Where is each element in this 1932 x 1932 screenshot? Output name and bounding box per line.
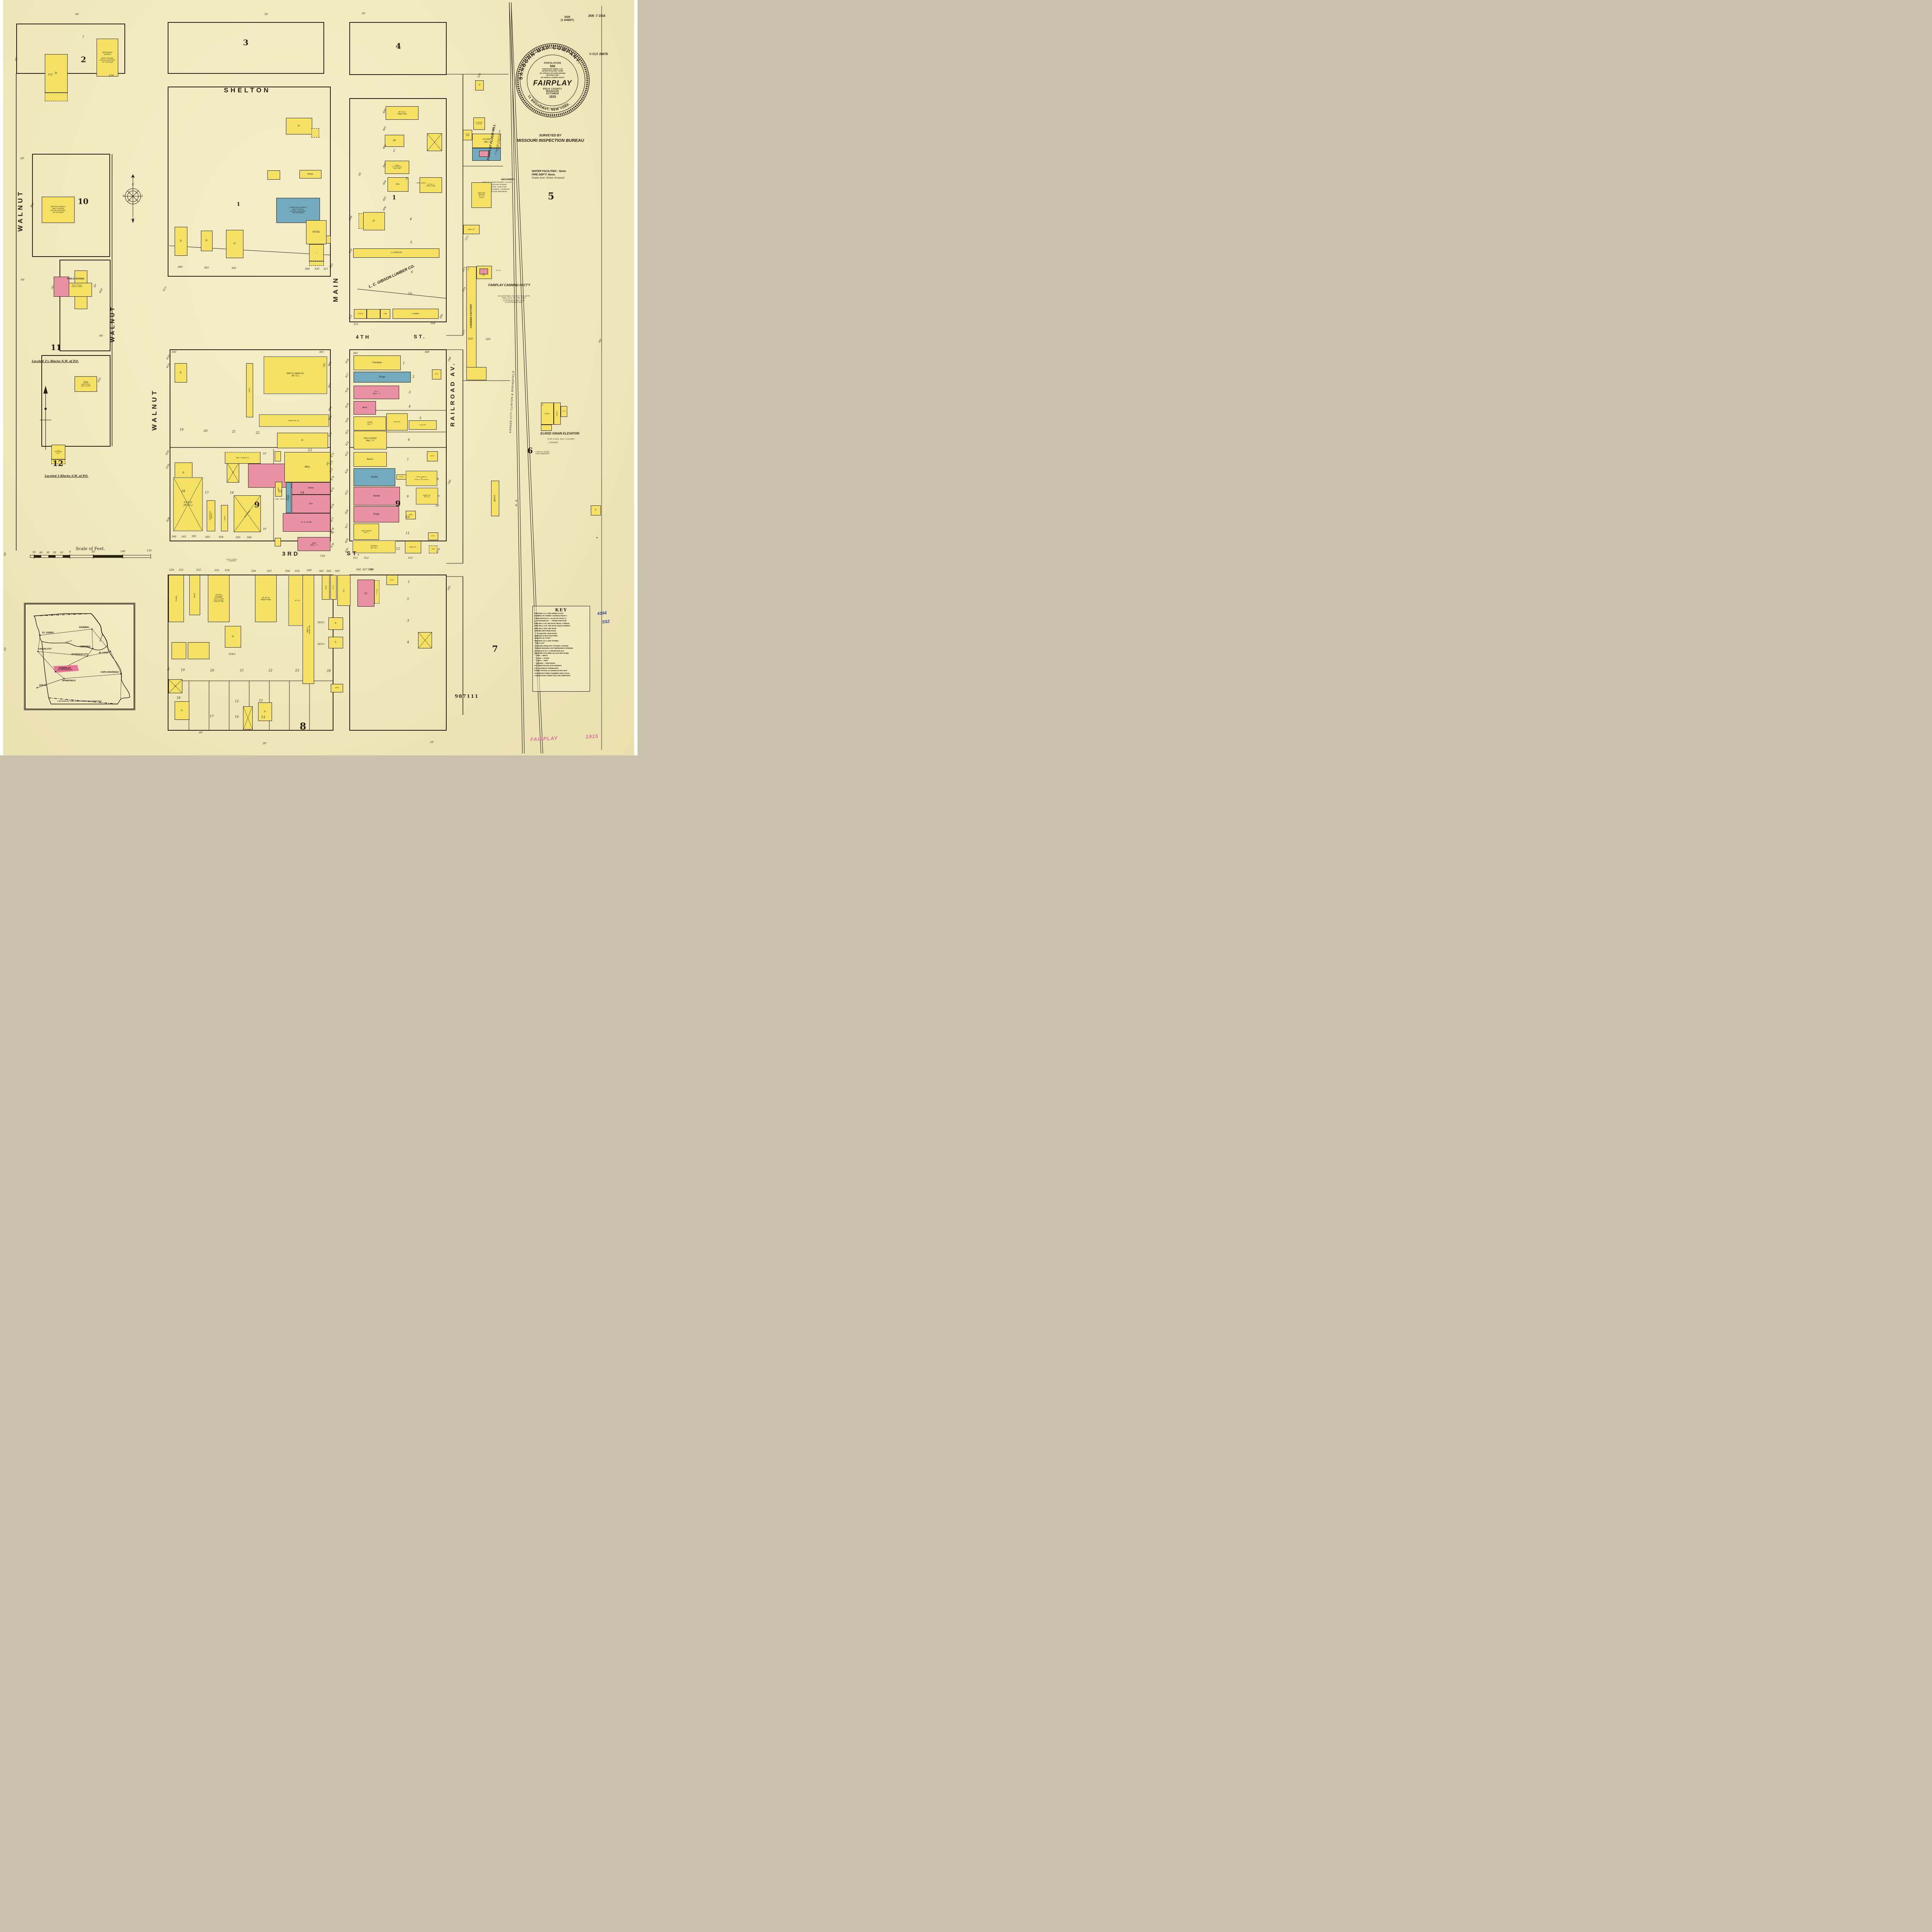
drug-store-label: Drugs [379, 376, 385, 379]
building: D. [175, 701, 189, 720]
printing-shop-label: Printing 1 HP. GAS. ENG. 3 GAL. TANK [392, 165, 402, 169]
map-label: Scale of Feet. [76, 547, 105, 552]
depot: DEPOT [491, 481, 499, 516]
furniture-store: Furniture [354, 355, 401, 370]
map-label: 30 [46, 551, 49, 554]
building: AUTO. [432, 369, 441, 379]
map-label: 7 [406, 458, 408, 461]
map-label: 300 [178, 266, 182, 269]
inset-city-dot [64, 678, 65, 679]
map-label: 515 [408, 557, 413, 560]
map-label: 15 [259, 699, 263, 702]
building-label: 1½ [232, 472, 234, 473]
building-label: POULTRY [394, 421, 401, 423]
map-label: N [132, 183, 134, 186]
building-label: WARE HO. (IR. CL.) [423, 495, 431, 498]
map-label: 10' [263, 452, 267, 456]
building-label: D. [335, 641, 337, 644]
map-label: 10 [408, 292, 412, 295]
soda-water-factory-label: SODA WATER FACT'Y. [361, 530, 371, 534]
map-label: 310 [315, 268, 319, 271]
map-label: 70' [330, 532, 334, 535]
hardware-store: Hardw. [354, 487, 400, 505]
map-label: 319 [468, 338, 473, 341]
map-label: 1 [403, 361, 405, 365]
hardware-store: Hardw. [354, 468, 395, 486]
building: Barber [292, 482, 330, 495]
building-label: SHED [249, 388, 250, 392]
building [311, 128, 319, 138]
map-label: 9 [254, 500, 260, 510]
implement-warehouse: IMPL'T. WARE HO. [303, 575, 314, 684]
map-label: 60' [21, 279, 25, 282]
building-label: WARE HO. [409, 546, 417, 548]
building: PLATFM. [396, 474, 406, 480]
telephone-exchange: D. & TELEPHONE EXCH. [51, 445, 65, 459]
building-label: 1½ [175, 685, 177, 687]
map-label: 13 [261, 715, 265, 719]
building-label: D. [232, 636, 234, 638]
building [275, 538, 281, 546]
electric-light-plant: ELECTRIC LIGHT PLANT & GARAGE CAP'C'Y 12… [208, 575, 230, 622]
building: WARE HO. [405, 541, 421, 553]
building-label: Restr't. [194, 592, 196, 598]
building: POULTRY [409, 420, 437, 430]
building [466, 367, 486, 380]
building: B [427, 133, 442, 151]
map-label: 309 [305, 268, 310, 271]
building: OFFICE [354, 309, 367, 319]
map-label: 560 [307, 569, 311, 572]
private-repair-shop: PRIVATE REPAIR SHOP [471, 182, 492, 208]
building: IMPL'T. WARE HO. [225, 452, 260, 464]
map-label: 554 [225, 569, 230, 572]
christian-church: CHRISTIAN CHURCH HEAT: STOVE. LIGHTS: EL… [276, 198, 320, 223]
scale-bar [30, 554, 151, 559]
map-label: 3 [405, 177, 407, 180]
map-label: 2 [542, 403, 543, 406]
building [275, 451, 281, 461]
printing-shop: Printing 1 HP. GAS. ENG. 3 GAL. TANK [385, 161, 409, 174]
furniture-store-label: Furniture [372, 362, 382, 364]
building-label: PLATFORM [376, 589, 378, 595]
building: SHED [275, 482, 282, 497]
building-label: D. [335, 622, 337, 625]
building-label: SHED [335, 687, 338, 689]
key-line: CONSECUTIVE STREET NO'S ARE ARBITRARY [534, 675, 588, 677]
building: D. [225, 626, 241, 648]
building [418, 632, 432, 648]
map-label: 362 [353, 352, 358, 355]
inset-city-st-louis: ST. LOUIS [99, 652, 109, 654]
baptist-church-label: BAPTIST CHURCH HEAT: STOVES LIGHTS: ELEC… [50, 206, 66, 213]
map-label: 9 [395, 499, 401, 509]
building: AUTO. [428, 532, 438, 540]
photo-studio: Photo. [299, 170, 321, 179]
building [243, 706, 253, 730]
hardware-warehouse: HARDW. WARE HO. (8) (CORR. IR. ON STUDD'… [406, 471, 437, 486]
map-label: PUBLIC SCHOOL [67, 278, 85, 280]
blacksmith-wagon-shop: Bl. Sm. & Wagon Shop [386, 106, 418, 120]
building: 1½ [227, 463, 239, 483]
building: Poultry [168, 575, 184, 622]
soda-water-factory: SODA WATER FACT'Y. [354, 524, 379, 540]
map-label: MAIN [332, 276, 340, 302]
moving-pictures: MOVING PICTURES - 2° [286, 482, 291, 513]
map-label: 18 [177, 696, 180, 699]
map-label: 506 [247, 536, 252, 539]
map-label: 6 [408, 438, 410, 441]
building: WARE HO. (IR. CL.) [416, 488, 438, 505]
sanborn-seal: SANBORN MAP COMPANY. 11 BROADWAY, NEW YO… [515, 43, 590, 118]
building: POULTRY [386, 413, 408, 430]
map-label: 21 [240, 668, 244, 672]
map-label: 20 [204, 429, 207, 432]
map-label: 1020 (1 SHEET) [561, 16, 574, 22]
building-label: D. [301, 439, 304, 442]
implements-warehouse: IMPLTS. WARE HO. (IR. CL.) [264, 356, 327, 394]
post-office: POST OFFICE HALL - 2° [354, 431, 387, 449]
map-label: JAN -7 1916 [588, 14, 605, 17]
restaurant: Restr't. IR. CL. [259, 414, 329, 427]
hardware-store-label: Hardw. [373, 495, 381, 498]
hotel-grocery-label: Gro Hall 2° [364, 592, 368, 595]
map-label: 552 [196, 569, 201, 572]
map-label: 150 [147, 549, 151, 553]
bank-office-label: Bank Office - 2° [310, 542, 318, 546]
map-label: 311 [323, 268, 328, 271]
map-label: E [141, 195, 143, 197]
building-label: AUTO. [431, 536, 435, 537]
building-label: D. [264, 711, 266, 713]
map-label: 50 [92, 551, 95, 554]
bank-office: Bank Office - 2° [298, 537, 330, 551]
building: FLOUR MILL & OFFICE [473, 117, 485, 130]
building-label: IMPL'T. WARE HO. [236, 457, 250, 459]
building: D. [226, 230, 243, 258]
map-label: 2 [81, 55, 86, 65]
missouri-location-inset: ST. JOSEPHHANNIBALKANSAS CITYCOLUMBIAJEF… [25, 604, 134, 709]
building [188, 642, 209, 659]
map-label: 12 [396, 547, 400, 550]
map-label: © Cl.F 29678 [589, 52, 608, 56]
map-label: 2 [412, 375, 414, 378]
map-label: 50' [362, 12, 366, 15]
building-label: PLATFM. [399, 476, 404, 478]
building: SCALES [554, 403, 561, 425]
seal-year: 1915 [549, 95, 556, 99]
map-label: 6 [411, 270, 413, 274]
surveyed-by: SURVEYED BY [515, 134, 585, 137]
bank-label: Bank [362, 406, 367, 409]
building-label: AUTO. [435, 374, 439, 375]
building-label: Gro. [396, 184, 400, 186]
inset-city-cape-girardeau: CAPE GIRARDEAU [100, 671, 119, 673]
map-label: 501 [182, 536, 186, 539]
implements-warehouse-label: IMPLTS. WARE HO. (IR. CL.) [287, 373, 304, 377]
building: OFF. [561, 406, 567, 417]
map-label: 361 [319, 351, 324, 354]
building-label: Off. [393, 140, 396, 142]
restaurant: Restr't. [354, 452, 387, 467]
building: SHED [331, 684, 343, 692]
map-label: 114 [109, 74, 114, 77]
map-label: 505 [236, 536, 240, 539]
building-label: Barber [308, 487, 314, 490]
lumber-yard: L U M B E R [353, 248, 439, 258]
map-label: 1 BBL. GASOL. [275, 498, 286, 500]
undertakers-warehouse-label: UNDERTAKER'S WARE HO. [209, 511, 212, 520]
map-label: 18 [181, 489, 185, 493]
map-label: 563⅓ [318, 643, 325, 646]
map-label: 368 [425, 351, 429, 354]
inset-city-kansas-city: KANSAS CITY [38, 648, 51, 650]
building-label: DRAYMAN [244, 510, 251, 518]
map-label: Located 2½ Blocks N.W. of P.O. [32, 360, 79, 363]
inset-city-dot [40, 635, 41, 636]
map-label: 4 [408, 405, 410, 408]
map-label: 1 BBL. GASOL. [416, 182, 427, 184]
map-label: WALNUT [151, 389, 158, 430]
building-label: OFFICE [358, 313, 363, 315]
blacksmith-wagon-shop-label: Bl. Sm. & Wagon Shop [397, 111, 406, 115]
map-label: 7 [492, 645, 498, 655]
map-label: IR. CH. [496, 270, 501, 271]
inspection-bureau: MISSOURI INSPECTION BUREAU [515, 138, 585, 143]
drug-store: Drugs [354, 372, 411, 383]
inset-city-dot [37, 687, 38, 689]
telephone-exchange-label: D. & TELEPHONE EXCH. [54, 450, 62, 454]
map-label: 5 [419, 416, 421, 420]
map-label: 312 [354, 323, 358, 326]
building-label: (IR. CL.) [294, 600, 300, 601]
map-label: 7 [82, 35, 84, 39]
inset-city-hannibal: HANNIBAL [79, 626, 89, 629]
building: AUTO. [427, 451, 438, 461]
map-label: 502 [192, 535, 196, 538]
map-label: 4 [410, 217, 412, 221]
map-label: 558 [285, 570, 290, 573]
key-title: KEY [534, 607, 588, 612]
drug-store: Drugs [354, 506, 399, 522]
dry-goods: D. G. Office - 2° [354, 386, 399, 399]
map-label: 8 [300, 721, 306, 732]
map-label: 12 [53, 459, 63, 468]
map-label: 9 [406, 495, 408, 498]
building-label: B [434, 141, 435, 143]
map-label: S [132, 217, 134, 220]
map-label: R. R. [515, 498, 519, 507]
map-label: 511 [353, 557, 358, 560]
map-label: ELROD GRAIN ELEVATOR [541, 432, 579, 435]
building: Cobbler [221, 505, 228, 531]
building-label: SHED [432, 549, 435, 550]
map-label: 504 [219, 536, 223, 539]
building-label: WIRE HO. [468, 229, 475, 230]
hardware-store-label: Hardw. [371, 476, 378, 479]
map-label: 0 [69, 551, 71, 554]
map-label: 5 [410, 240, 412, 244]
photo-studio-label: Photo. [308, 173, 314, 175]
map-label: 4 [396, 42, 401, 51]
map-label: 21 [232, 430, 236, 433]
building: SHED [246, 363, 253, 417]
map-label: 22 [269, 668, 272, 672]
map-label: FAIRPLAY CANNING FACT'Y [488, 283, 531, 287]
inset-city-dot [37, 651, 39, 652]
map-label: 987111 [455, 694, 479, 699]
hardware-warehouse-label: HARDW. WARE HO. (8) (CORR. IR. ON STUDD'… [415, 476, 429, 480]
building-label: AUTO. [430, 456, 435, 457]
building: Harness [330, 575, 337, 600]
map-label: 60' [20, 157, 24, 160]
lumber-yard-label: LUMBER [412, 313, 419, 315]
post-office-label: POST OFFICE HALL - 2° [364, 438, 376, 442]
map-label: 3RD [282, 551, 300, 558]
map-label: Located 3 Blocks S.W. of P.O. [44, 474, 88, 478]
map-label: 512 [364, 557, 369, 560]
map-label: 2 GALS. GASOL. ○ UNDERGR. [226, 559, 238, 562]
grades-note: Grades level. Streets not paved. [532, 177, 597, 179]
building-label: D. [182, 472, 185, 474]
map-label: 318 [430, 322, 435, 325]
inset-city-springfield: SPRINGFIELD [62, 680, 76, 682]
building: Restr't. [189, 575, 200, 615]
building-label: FLOUR MILL & OFFICE [476, 122, 483, 125]
public-school: PUBLIC SCHOOL HEAT: STOVES LIGHTS: LAMPS [75, 376, 97, 392]
building [45, 93, 68, 101]
map-label: 60' [199, 731, 203, 735]
undertakers-warehouse: UNDERTAKER'S WARE HO. [207, 500, 215, 531]
building-label: D [479, 84, 480, 87]
map-label: 556 [251, 570, 256, 573]
dry-goods-label: D. G. Office - 2° [372, 390, 380, 394]
building-label: D. [298, 125, 300, 128]
map-label: 14 [300, 491, 304, 494]
building: D [475, 80, 484, 90]
map-label: 23 [295, 668, 299, 672]
map-label: 554½ [229, 653, 236, 656]
compass-rose [124, 175, 141, 223]
building: WIRE HO. [463, 225, 480, 234]
scan-edge [634, 0, 638, 755]
building: D. [175, 227, 187, 256]
map-label: 563½ [318, 621, 325, 624]
map-label: 16 [230, 491, 234, 494]
building-label: D. [180, 240, 182, 243]
blacksmith-wagon-shop: Bl. Sm. & Wagon Shop [420, 177, 442, 193]
hotel-label: HOTEL [312, 231, 320, 234]
seal-population: 500 [550, 65, 555, 68]
water-facilities: WATER FACILITIES : None. [532, 170, 597, 173]
inset-caption: LOCATION OF THIS TOWN AS ABOVE UNDERLINE… [58, 700, 102, 702]
depot-label: DEPOT [494, 495, 497, 502]
building-label: AUTO. [390, 579, 395, 581]
building-label: D. [180, 372, 182, 374]
map-label: 5 [548, 191, 554, 202]
lumber-yard: LUMBER [393, 309, 439, 319]
map-label: 551 [179, 569, 184, 572]
building: LIME [380, 309, 390, 319]
map-label: 22 [256, 431, 260, 434]
map-label: ○ 50 GAL. GASOL. TANK UNDERGR. [535, 451, 550, 455]
drug-store-label: Drugs [373, 513, 379, 516]
building-label: Gro. [343, 589, 345, 592]
public-school-label: PUBLIC SCHOOL HEAT: STOVES LIGHTS: LAMPS [81, 381, 91, 387]
map-label: 2 [393, 149, 395, 152]
map-label: 3 [407, 619, 409, 622]
map-label: RAILROAD AV. [449, 362, 456, 427]
map-label: 562 [327, 570, 331, 573]
building-label: Poultry [175, 596, 177, 601]
map-label: ST. [414, 333, 426, 339]
map-label: 1 [408, 580, 410, 583]
building-label: 2 [316, 252, 317, 253]
map-label: 3 [408, 390, 410, 394]
map-label: 16 [235, 715, 239, 718]
map-label: 350 [172, 351, 176, 354]
building: Off. [385, 135, 404, 147]
map-label: 60' [99, 335, 103, 338]
map-label: 112 [48, 73, 53, 77]
bank: Bank [354, 401, 376, 415]
inset-city-st-joseph: ST. JOSEPH [42, 632, 54, 634]
building [172, 642, 186, 659]
map-label: 4TH [356, 334, 371, 340]
restaurant-label: Restr't. IR. CL. [288, 420, 299, 422]
map-label: 4 [407, 640, 409, 644]
building-label: LIME [384, 313, 387, 315]
inset-city-joplin: JOPLIN [39, 684, 46, 687]
inset-city-dot [55, 671, 56, 672]
map-label: 553 [214, 569, 219, 572]
sanborn-map-sheet: SANBORN MAP COMPANY. 11 BROADWAY, NEW YO… [0, 0, 638, 755]
building: D. [286, 118, 312, 134]
map-label: 100 [121, 550, 125, 553]
building [267, 170, 280, 180]
inset-city-jefferson-city: JEFFERSON CITY [71, 653, 88, 656]
grain-elevator-label: ELEV. [545, 413, 550, 415]
furniture-store-label: Furniture (IR. CL.) [371, 545, 378, 549]
map-label: 320 [486, 338, 490, 341]
restaurant-label: Restr't. [367, 458, 373, 461]
map-label: 17 [205, 491, 209, 494]
map-label: 20' [263, 742, 267, 745]
inset-city-dot [120, 673, 121, 675]
building: D. [175, 363, 187, 383]
electric-light-plant-label: ELECTRIC LIGHT PLANT & GARAGE CAP'C'Y 12… [213, 594, 224, 602]
map-label: 500 [172, 536, 176, 539]
building: D. [277, 433, 328, 448]
millinery: Mill'y. [284, 452, 330, 482]
dry-goods-clothing: D. G. & Clo. [283, 513, 330, 532]
map-label: 12 [235, 699, 239, 703]
scan-edge [0, 0, 3, 755]
map-label: 10' [263, 528, 267, 531]
baptist-church: BAPTIST CHURCH HEAT: STOVES LIGHTS: ELEC… [42, 197, 75, 223]
map-label: SHELTON [224, 87, 270, 94]
lumber-yard-label: L U M B E R [391, 252, 402, 254]
map-label: 303 [204, 267, 209, 270]
building-label: OFF. [563, 411, 565, 412]
building [541, 425, 552, 431]
map-label: 559 [295, 570, 299, 573]
map-label: 561 [319, 570, 324, 573]
map-label: 557 [267, 570, 272, 573]
map-label: ENG. 40 H [482, 274, 485, 277]
moving-pictures-label: MOVING PICTURES - 2° [287, 495, 291, 501]
map-label: 10 [406, 515, 410, 519]
